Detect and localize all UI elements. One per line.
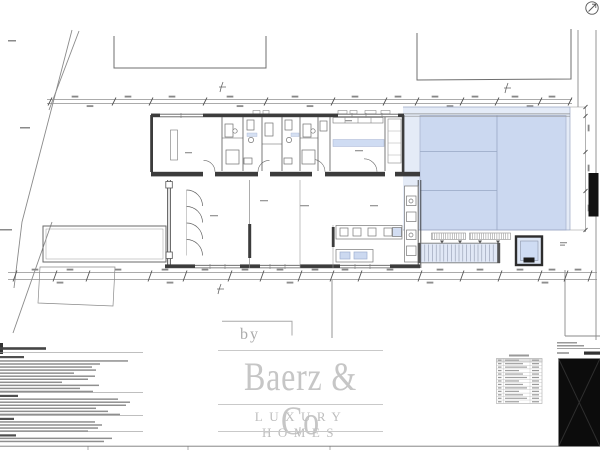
watermark-corner-line: [222, 321, 292, 335]
wall-pier: [332, 227, 335, 247]
watermark-rule-top: [218, 350, 383, 351]
watermark-rule-middle: [218, 404, 383, 405]
spa-box: [516, 237, 542, 266]
bathroom-fixtures: [225, 120, 327, 164]
floorplan-sheet: by Baerz & Co LUXURY HOMES: [0, 0, 600, 450]
house-exterior-walls: [150, 113, 421, 269]
pool: [43, 226, 166, 262]
neighbor-building-left: [114, 36, 266, 68]
room-schedule-table: [497, 355, 543, 404]
kitchen-counters: [336, 186, 418, 262]
north-arrow-icon: [586, 2, 598, 14]
sheet-bottom-border: [0, 446, 558, 450]
floorplan-drawing: [0, 0, 600, 450]
notes-text-block: [0, 343, 143, 442]
black-marker-bar: [589, 173, 599, 217]
folding-door-arcs: [187, 190, 203, 256]
roof-hatch-strips: [432, 233, 511, 244]
edge-labels: [0, 40, 30, 231]
terrace-highlight-area: [403, 107, 570, 230]
titleblock-black-box: [559, 359, 600, 447]
pergola-louvers: [418, 243, 500, 263]
watermark-rule-bottom: [218, 431, 383, 432]
wall-pier: [248, 224, 251, 258]
titleblock: [557, 342, 600, 447]
neighbor-building-right: [417, 29, 571, 80]
